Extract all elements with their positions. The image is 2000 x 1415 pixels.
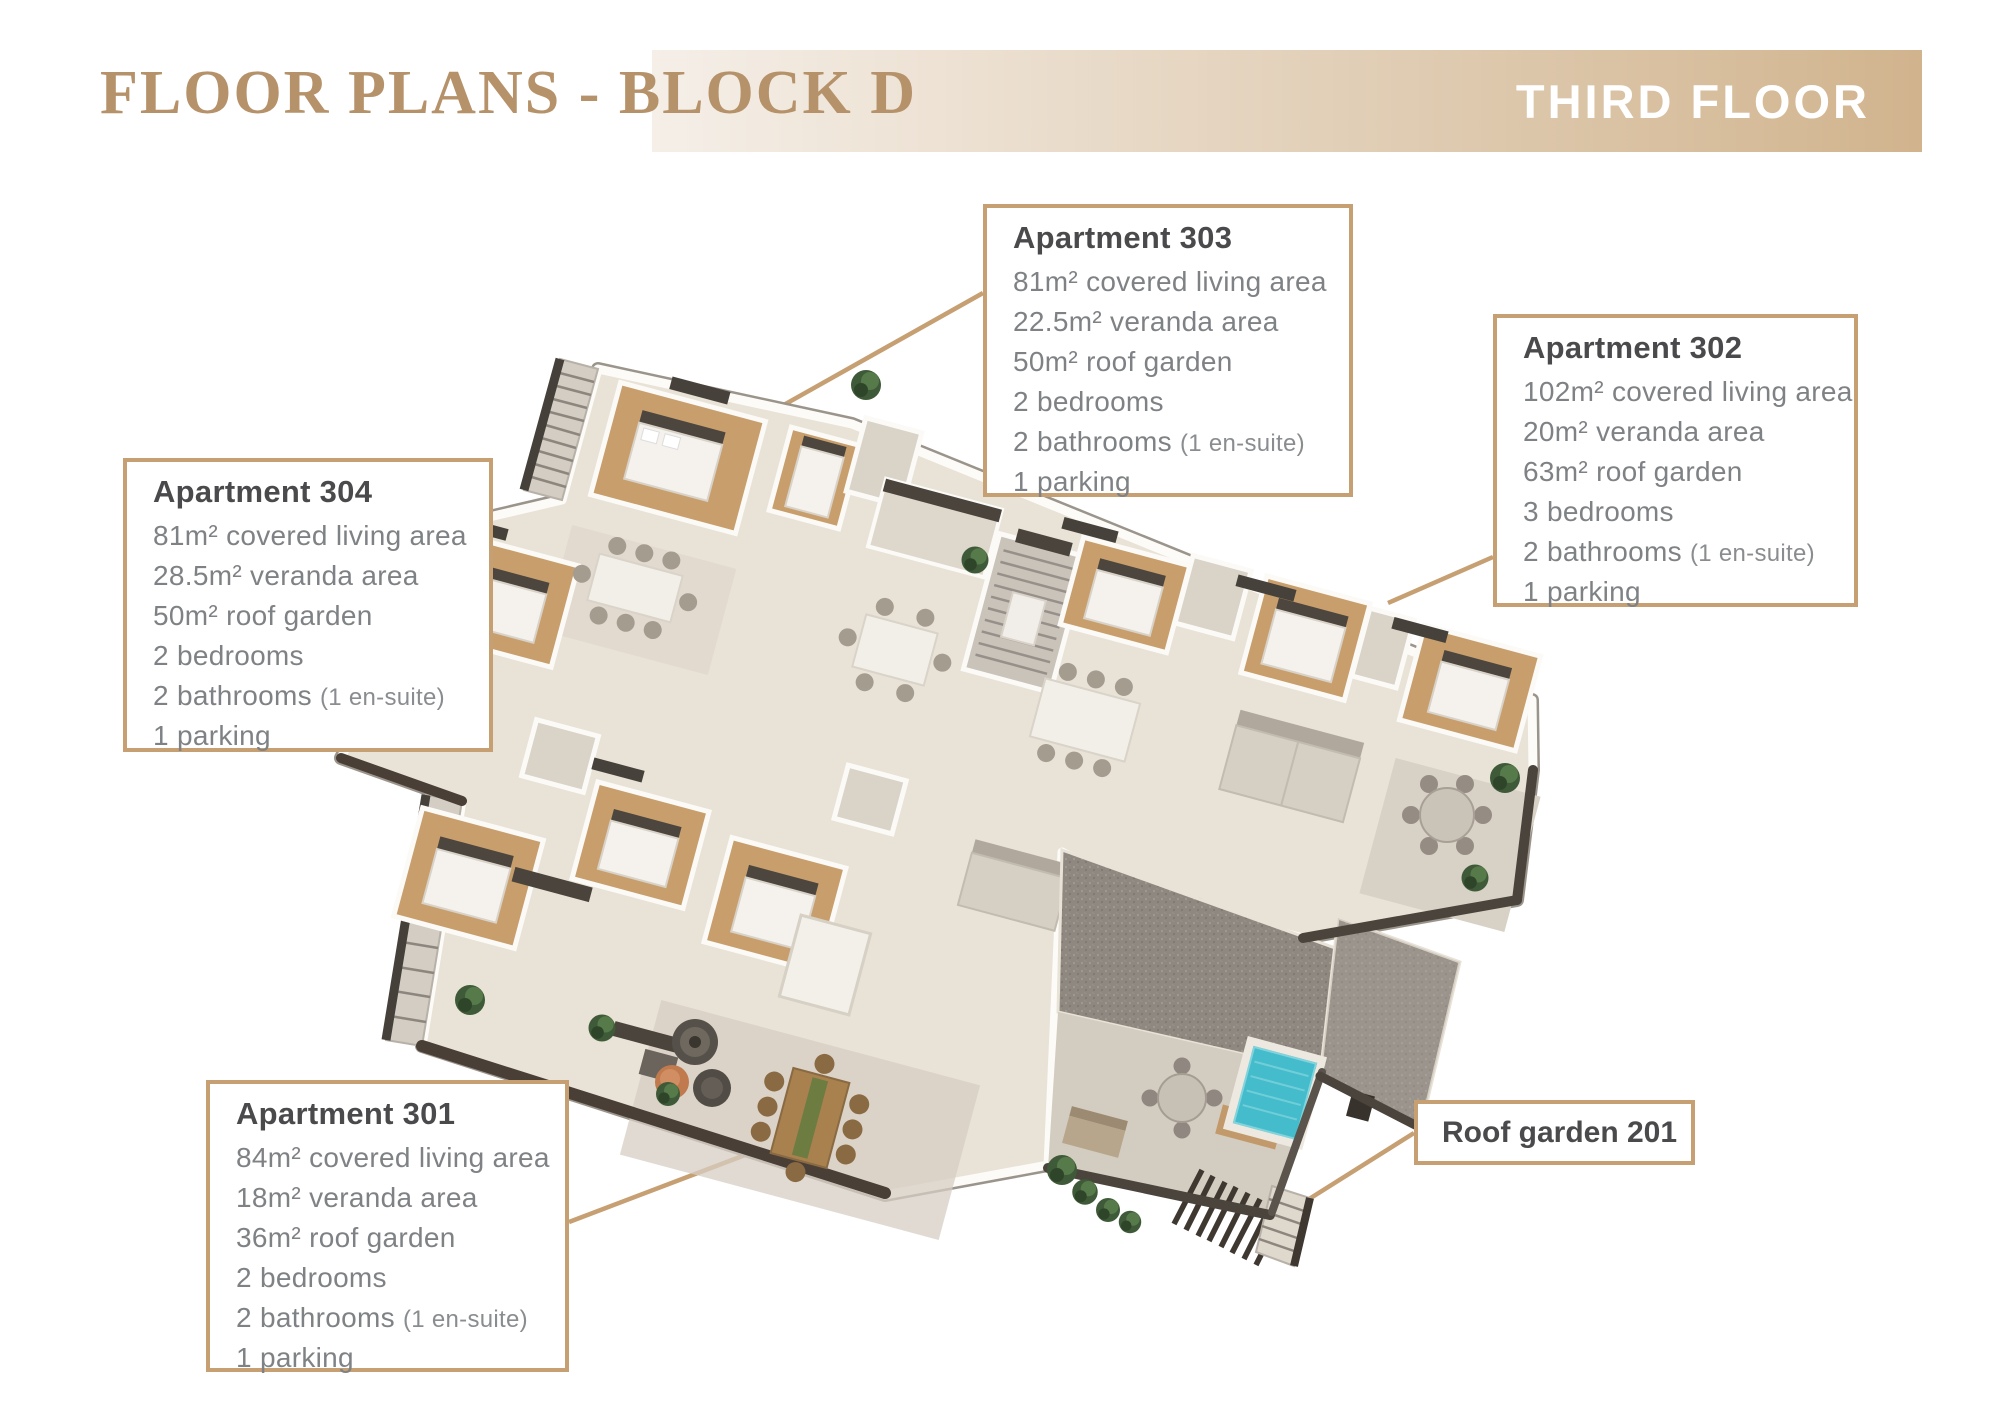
- callout-title: Apartment 303: [1013, 220, 1349, 256]
- callout-apartment-302: Apartment 302 102m² covered living area …: [1493, 314, 1858, 607]
- leader-303: [757, 293, 983, 420]
- parking: 1 parking: [236, 1338, 565, 1378]
- bedrooms: 3 bedrooms: [1523, 492, 1854, 532]
- callout-apartment-303: Apartment 303 81m² covered living area 2…: [983, 204, 1353, 497]
- en-suite-note: (1 en-suite): [1690, 540, 1815, 567]
- en-suite-note: (1 en-suite): [403, 1306, 528, 1333]
- veranda-area: 28.5m² veranda area: [153, 556, 489, 596]
- veranda-area: 20m² veranda area: [1523, 412, 1854, 452]
- bathrooms: 2 bathrooms(1 en-suite): [1523, 532, 1854, 572]
- roof-garden-label: Roof garden 201: [1418, 1116, 1677, 1150]
- brochure-page: FLOOR PLANS - BLOCK D THIRD FLOOR: [0, 0, 2000, 1415]
- covered-area: 81m² covered living area: [1013, 262, 1349, 302]
- label-roof-garden-201: Roof garden 201: [1414, 1100, 1695, 1165]
- callout-apartment-301: Apartment 301 84m² covered living area 1…: [206, 1080, 569, 1372]
- bedrooms: 2 bedrooms: [236, 1258, 565, 1298]
- page-title: FLOOR PLANS - BLOCK D: [100, 58, 917, 129]
- parking: 1 parking: [1013, 462, 1349, 502]
- bedrooms: 2 bedrooms: [1013, 382, 1349, 422]
- callout-title: Apartment 302: [1523, 330, 1854, 366]
- covered-area: 102m² covered living area: [1523, 372, 1854, 412]
- covered-area: 84m² covered living area: [236, 1138, 565, 1178]
- parking: 1 parking: [153, 716, 489, 756]
- bathrooms: 2 bathrooms(1 en-suite): [153, 676, 489, 716]
- parking: 1 parking: [1523, 572, 1854, 612]
- veranda-area: 18m² veranda area: [236, 1178, 565, 1218]
- en-suite-note: (1 en-suite): [1180, 430, 1305, 457]
- veranda-area: 22.5m² veranda area: [1013, 302, 1349, 342]
- callout-apartment-304: Apartment 304 81m² covered living area 2…: [123, 458, 493, 752]
- roof-garden-area: 63m² roof garden: [1523, 452, 1854, 492]
- callout-title: Apartment 304: [153, 474, 489, 510]
- en-suite-note: (1 en-suite): [320, 684, 445, 711]
- roof-garden-area: 36m² roof garden: [236, 1218, 565, 1258]
- roof-garden-area: 50m² roof garden: [1013, 342, 1349, 382]
- bathrooms: 2 bathrooms(1 en-suite): [236, 1298, 565, 1338]
- bedrooms: 2 bedrooms: [153, 636, 489, 676]
- leader-roof-garden: [1298, 1133, 1414, 1206]
- leader-302: [1388, 557, 1493, 603]
- covered-area: 81m² covered living area: [153, 516, 489, 556]
- bathrooms: 2 bathrooms(1 en-suite): [1013, 422, 1349, 462]
- room-301-bath: [834, 765, 906, 834]
- room-304-bath: [522, 720, 599, 793]
- roof-garden-area: 50m² roof garden: [153, 596, 489, 636]
- callout-title: Apartment 301: [236, 1096, 565, 1132]
